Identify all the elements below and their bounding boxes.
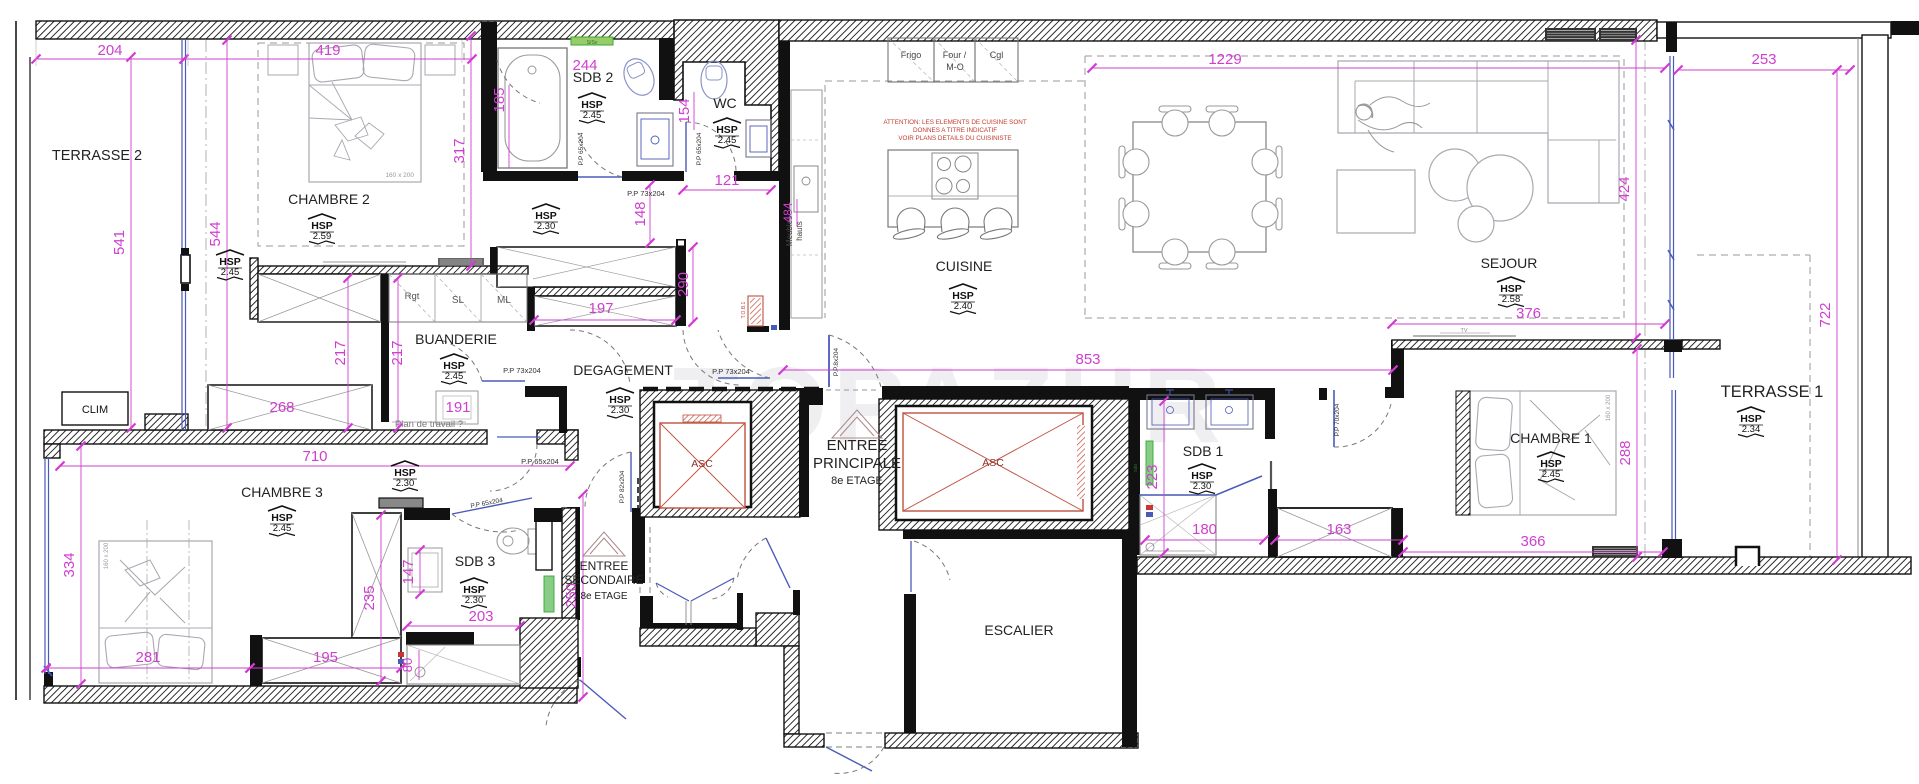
svg-text:195: 195 xyxy=(313,649,338,666)
svg-text:ASC: ASC xyxy=(982,457,1004,469)
svg-text:SECONDAIRE: SECONDAIRE xyxy=(564,573,643,587)
svg-text:419: 419 xyxy=(315,42,340,59)
svg-text:CHAMBRE 1: CHAMBRE 1 xyxy=(1510,430,1592,446)
svg-text:317: 317 xyxy=(451,138,468,163)
svg-text:185: 185 xyxy=(491,87,508,112)
svg-text:544: 544 xyxy=(207,221,224,246)
svg-text:2.45: 2.45 xyxy=(445,371,464,382)
svg-text:160 x 200: 160 x 200 xyxy=(104,542,110,569)
svg-text:hauts: hauts xyxy=(795,221,804,241)
svg-text:SDB 1: SDB 1 xyxy=(1183,443,1224,459)
svg-text:160 x 200: 160 x 200 xyxy=(385,172,414,179)
svg-text:Plan de travail ?: Plan de travail ? xyxy=(395,419,463,430)
svg-text:SDB 3: SDB 3 xyxy=(455,553,496,569)
svg-text:P.P 73x204: P.P 73x204 xyxy=(503,366,541,375)
svg-text:147: 147 xyxy=(400,559,417,584)
svg-text:P.P 70x204: P.P 70x204 xyxy=(1334,403,1341,436)
svg-text:288: 288 xyxy=(1617,440,1634,465)
svg-text:2.45: 2.45 xyxy=(1542,469,1561,480)
svg-text:SdB: SdB xyxy=(1133,464,1138,473)
svg-text:CHAMBRE 3: CHAMBRE 3 xyxy=(241,484,323,500)
svg-text:ESCALIER: ESCALIER xyxy=(984,622,1053,638)
svg-text:Four /: Four / xyxy=(943,50,967,60)
svg-text:1229: 1229 xyxy=(1208,51,1241,68)
svg-text:ENTREE: ENTREE xyxy=(580,559,629,573)
svg-text:253: 253 xyxy=(1751,51,1776,68)
svg-text:80: 80 xyxy=(400,658,415,672)
svg-text:191: 191 xyxy=(445,399,470,416)
svg-text:ASC: ASC xyxy=(691,458,713,470)
svg-text:2.40: 2.40 xyxy=(954,301,973,312)
svg-text:2.30: 2.30 xyxy=(537,221,556,232)
svg-text:CHAMBRE 2: CHAMBRE 2 xyxy=(288,191,370,207)
svg-text:S/Sv: S/Sv xyxy=(587,40,598,46)
svg-text:BUANDERIE: BUANDERIE xyxy=(415,331,497,347)
svg-text:TERRASSE 2: TERRASSE 2 xyxy=(52,148,142,164)
svg-text:2.45: 2.45 xyxy=(583,110,602,121)
svg-text:376: 376 xyxy=(1516,305,1541,322)
svg-text:TV: TV xyxy=(1460,328,1467,334)
svg-text:290: 290 xyxy=(675,272,692,297)
svg-text:2.30: 2.30 xyxy=(611,405,630,416)
svg-text:121: 121 xyxy=(714,172,739,189)
svg-text:Frigo: Frigo xyxy=(901,50,922,60)
svg-text:VOIR PLANS DETAILS DU CUISINIS: VOIR PLANS DETAILS DU CUISINISTE xyxy=(898,135,1011,142)
svg-text:DEGAGEMENT: DEGAGEMENT xyxy=(573,362,673,378)
svg-text:268: 268 xyxy=(269,399,294,416)
svg-text:484: 484 xyxy=(781,202,795,222)
svg-text:2.30: 2.30 xyxy=(396,478,415,489)
svg-text:334: 334 xyxy=(61,552,78,577)
svg-text:366: 366 xyxy=(1520,533,1545,550)
svg-text:TERRASSE 1: TERRASSE 1 xyxy=(1721,383,1824,401)
svg-text:2.45: 2.45 xyxy=(273,523,292,534)
svg-text:P.P.8x204: P.P.8x204 xyxy=(833,347,840,376)
svg-text:2.30: 2.30 xyxy=(465,595,484,606)
svg-text:M-O: M-O xyxy=(946,62,964,72)
svg-text:2.30: 2.30 xyxy=(1193,481,1212,492)
svg-text:541: 541 xyxy=(111,230,128,255)
svg-text:281: 281 xyxy=(135,649,160,666)
svg-text:ENTREE: ENTREE xyxy=(827,437,888,454)
svg-text:T.O.B.1: T.O.B.1 xyxy=(741,301,747,318)
svg-text:P.P 73x204: P.P 73x204 xyxy=(627,189,665,198)
svg-text:SDB 2: SDB 2 xyxy=(573,69,614,85)
svg-text:197: 197 xyxy=(588,300,613,317)
svg-text:WC: WC xyxy=(713,95,736,111)
svg-text:160 x 200: 160 x 200 xyxy=(1606,394,1612,421)
svg-text:2.45: 2.45 xyxy=(718,135,737,146)
svg-text:710: 710 xyxy=(302,448,327,465)
svg-text:CLIM: CLIM xyxy=(82,404,108,416)
svg-text:2.59: 2.59 xyxy=(313,231,332,242)
svg-text:235: 235 xyxy=(361,585,378,610)
svg-text:SL: SL xyxy=(452,295,465,306)
svg-text:P.P 82x204: P.P 82x204 xyxy=(619,470,626,503)
svg-text:217: 217 xyxy=(332,340,349,365)
svg-text:P.P 65x204: P.P 65x204 xyxy=(696,132,703,165)
svg-text:204: 204 xyxy=(97,42,122,59)
svg-text:2.34: 2.34 xyxy=(1742,424,1761,435)
svg-text:P.P 65x204: P.P 65x204 xyxy=(521,457,559,466)
svg-text:ATTENTION: LES ELEMENTS DE CUI: ATTENTION: LES ELEMENTS DE CUISINE SONT xyxy=(883,119,1026,126)
svg-text:853: 853 xyxy=(1075,351,1100,368)
svg-text:ML: ML xyxy=(497,295,511,306)
svg-text:203: 203 xyxy=(468,608,493,625)
svg-text:148: 148 xyxy=(632,201,649,226)
svg-text:SEJOUR: SEJOUR xyxy=(1481,255,1538,271)
svg-text:154: 154 xyxy=(676,98,693,123)
svg-text:2.45: 2.45 xyxy=(221,267,240,278)
svg-text:Cgl: Cgl xyxy=(990,50,1004,60)
svg-text:217: 217 xyxy=(389,340,406,365)
svg-text:P.P 65x204: P.P 65x204 xyxy=(578,132,585,165)
svg-text:DONNES A TITRE INDICATIF: DONNES A TITRE INDICATIF xyxy=(913,127,997,134)
svg-text:424: 424 xyxy=(1616,176,1633,201)
svg-text:PRINCIPALE: PRINCIPALE xyxy=(813,455,901,472)
svg-text:722: 722 xyxy=(1817,302,1834,327)
svg-text:2.58: 2.58 xyxy=(1502,294,1521,305)
svg-text:223: 223 xyxy=(1144,464,1161,489)
svg-text:180: 180 xyxy=(1192,521,1217,538)
svg-text:8e ETAGE: 8e ETAGE xyxy=(831,475,883,487)
svg-text:Rgt: Rgt xyxy=(405,291,420,302)
svg-text:163: 163 xyxy=(1326,521,1351,538)
svg-text:8e ETAGE: 8e ETAGE xyxy=(580,591,627,602)
svg-text:P.P 73x204: P.P 73x204 xyxy=(712,367,750,376)
svg-text:CUISINE: CUISINE xyxy=(936,258,993,274)
